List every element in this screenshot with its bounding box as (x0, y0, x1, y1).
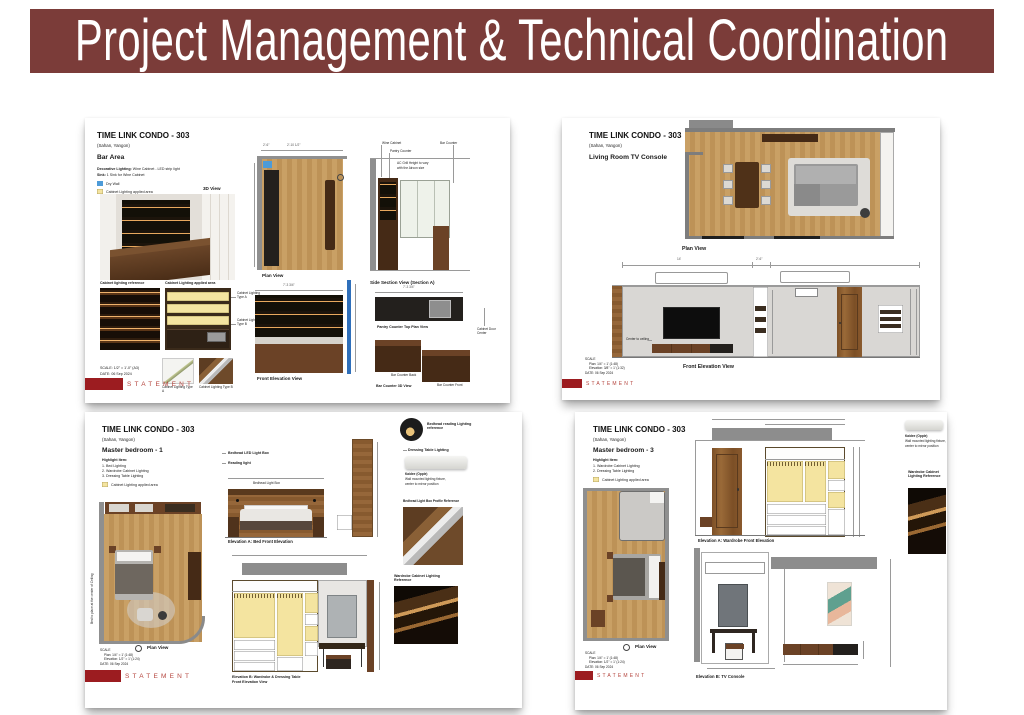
plan-wall-left (685, 154, 689, 238)
console-dim-line (863, 641, 864, 659)
center-ceiling-note: Center to ceiling (626, 338, 649, 342)
view-3d-label: 3D View (203, 186, 221, 191)
sheet-location: (Sahan, Yangon) (97, 143, 130, 148)
banner: Project Management & Technical Coordinat… (30, 9, 994, 73)
legend-cabinet-swatch (593, 477, 599, 482)
sofa-chaise (794, 184, 820, 206)
room-name: Bar Area (97, 154, 124, 162)
counter-leg (323, 649, 324, 667)
bar-counter-front-label: Bar Counter Front (437, 384, 463, 388)
plan-view-label: Plan View (635, 644, 656, 649)
highlight-item-1: 1. Wardrobe Cabinet Lighting (593, 464, 640, 468)
legend-cabinet-label: Cabinet Lighting applied area (602, 478, 649, 482)
hanger-ticks (805, 462, 826, 466)
elev-dim-26: 2'-6" (756, 258, 762, 262)
wardrobe-top-shelf-line (232, 591, 318, 592)
center-ceiling-leader (648, 340, 652, 341)
elevation-a-label: Elevation A: Bed Front Elevation (228, 540, 293, 545)
highlight-item-2: 2. Dressing Table Lighting (593, 469, 634, 473)
bar-counter-back-label: Bar Counter Back (391, 374, 416, 378)
bed-elevation (228, 489, 324, 537)
callout-leader-3 (453, 145, 454, 183)
highlight-title: Highlight Item: (102, 458, 127, 462)
eleva-dim-line-2 (765, 424, 845, 425)
bed-dim-line (228, 478, 324, 479)
door-knob (737, 488, 739, 491)
wardrobe-side-panel (352, 439, 373, 537)
room-name: Master bedroom - 1 (102, 447, 163, 455)
sheet-title: TIME LINK CONDO - 303 (102, 425, 194, 434)
led-fixture-image (905, 420, 943, 430)
plan-bathroom-pod (619, 491, 665, 541)
plan-dim-a: 2'-6" (263, 144, 269, 148)
elev-ceiling-cove (655, 272, 728, 284)
eleva-dim-line-v1 (853, 447, 854, 537)
pantry-counter-callout: Pantry Counter (390, 150, 411, 154)
shelf-stripe (880, 310, 901, 314)
elev-dim-line-v (377, 442, 378, 537)
bedside-table (228, 517, 239, 537)
dim-tick (770, 262, 771, 268)
sofa-cushions (796, 166, 856, 184)
callout-leader (222, 463, 226, 464)
elev-wood-pilaster (612, 286, 622, 357)
door-knob (839, 322, 841, 324)
sheet-location: (Sahan, Yangon) (102, 437, 135, 442)
dressing-mirror (327, 595, 357, 638)
led-fixture-image (405, 456, 467, 469)
elevb-tv (718, 584, 748, 627)
eleva-pelmet (712, 428, 832, 440)
hanger-ticks (234, 594, 275, 598)
plan-balcony-strip (880, 132, 894, 238)
wardrobe-hanging-left (767, 461, 803, 502)
callout-leader (403, 450, 407, 451)
plan-bed (613, 554, 661, 600)
reading-light-fixture (236, 499, 239, 502)
cabinet-lighting-reference-photo (100, 288, 160, 350)
plan-fixture (109, 504, 129, 512)
eleva-ceiling-line (695, 440, 865, 441)
art-dim-line-h (783, 664, 858, 665)
wine-cabinet-callout: Wine Cabinet (382, 142, 401, 146)
highlight-item-1: 1. Bed Lighting (102, 464, 126, 468)
plan-fixture-dark (165, 504, 195, 512)
front-elev-dim-line (255, 290, 343, 291)
plan-window (774, 236, 820, 239)
eleva-wall-box (700, 517, 712, 527)
elev-floor-line (612, 357, 920, 358)
sheet-location: (Sahan, Yangon) (589, 143, 622, 148)
console-leg (752, 633, 755, 653)
ac-grill-note-2: with the Aircon size (397, 167, 424, 171)
wardrobe-drawer (767, 515, 826, 525)
sheet-master-bedroom-1: TIME LINK CONDO - 303 (Sahan, Yangon) Ma… (85, 412, 522, 708)
elevb-side-panel (367, 580, 374, 672)
pantry-dim-line (375, 292, 463, 293)
plan-side-table (158, 611, 167, 620)
elevb-pelmet (242, 563, 347, 575)
legend-drywall-label: Dry Wall (106, 182, 119, 186)
statement-logo-mark (85, 378, 123, 390)
elevation-b-label-1: Elevation B: Wardrobe & Dressing Table (232, 675, 301, 679)
date-note: DATE: 06 Sep 2024 (100, 663, 128, 667)
callout-leader-2 (389, 153, 390, 179)
bar-counter-front-face (422, 356, 470, 382)
wardrobe-drawer (234, 651, 275, 661)
shelf-stripe (880, 324, 901, 328)
note-lighting: Decorative Lighting: Wine Cabinet - LED … (97, 167, 180, 171)
plan-dim-line (261, 150, 343, 151)
plan-dining-table (735, 162, 759, 208)
highlight-item-2: 2. Wardrobe Cabinet Lighting (102, 469, 149, 473)
plan-dim-b: 2'-10 1/2" (287, 144, 300, 148)
elev-tv-console (652, 344, 733, 353)
plan-wall-bottom (583, 638, 669, 641)
page-title: Project Management & Technical Coordinat… (75, 9, 949, 73)
reading-light-fixture (313, 499, 316, 502)
stool-top (326, 655, 351, 659)
plan-bench (591, 610, 605, 627)
wardrobe-lighting-photo (394, 586, 458, 644)
type-b-leader (231, 324, 236, 325)
wardrobe-hanging-mid (805, 461, 826, 502)
section-bar-counter (433, 226, 449, 270)
wardrobe-drawer (767, 526, 826, 535)
sheet-title: TIME LINK CONDO - 303 (593, 425, 685, 434)
pantry-dim: 7'-3 3/4" (403, 286, 415, 290)
stool-top (726, 644, 744, 649)
sheet-location: (Sahan, Yangon) (593, 437, 626, 442)
statement-logo-mark (85, 670, 121, 682)
bed-blanket (115, 564, 153, 594)
elev-shelf-column (753, 287, 768, 357)
eleva-floor-line (695, 535, 865, 536)
north-compass-icon (623, 644, 630, 651)
wardrobe-shelf (305, 614, 318, 625)
wardrobe-hanging-mid (277, 593, 303, 656)
eleva-wall-left (695, 440, 696, 535)
bed-throw (240, 521, 312, 530)
console-dark-segment (710, 344, 733, 353)
eleva-door (712, 448, 742, 535)
sheet-living-room: TIME LINK CONDO - 303 (Sahan, Yangon) Li… (562, 118, 940, 400)
light-box-profile-photo (403, 507, 463, 565)
section-ceiling-line (370, 158, 470, 159)
section-cut-marker (347, 280, 351, 374)
shelf-stripe (755, 306, 766, 311)
elev-dim-line-right (910, 289, 911, 355)
bar-counter-3d-label: Bar Counter 3D View (376, 384, 411, 388)
bar-3d-render (100, 194, 235, 280)
elevation-a-label: Elevation A: Wardrobe Front Elevation (698, 539, 774, 544)
statement-logo-text: STATEMENT (125, 673, 192, 680)
wardrobe-shelf (828, 509, 845, 535)
elevation-b-label-2: Front Elevation View (232, 680, 267, 684)
plan-view-label: Plan View (147, 645, 168, 650)
bed-pillows (117, 552, 151, 561)
highlight-title: Highlight Item: (593, 458, 618, 462)
plan-coffee-table (860, 208, 870, 218)
elev-tv (663, 307, 720, 339)
elev-ac-grill (795, 288, 818, 297)
counter-leg (361, 649, 362, 667)
plan-armchair (137, 608, 153, 621)
front-elevation-label: Front Elevation View (257, 376, 302, 381)
cabinet-applied-image (165, 288, 231, 350)
profile-ref-label: Bedhead Light Box Profile Reference (403, 500, 459, 504)
wardrobe-lighting-photo (908, 488, 946, 554)
elevb-dim-line (232, 555, 367, 556)
front-elevation-label: Front Elevation View (683, 364, 734, 370)
shelf-stripe (755, 328, 766, 333)
wardrobe-shelf-lit (305, 593, 318, 613)
bed-position-note: Bed to place at the center of Ceiling (91, 566, 95, 624)
section-marker-icon (337, 174, 344, 181)
plan-display-panel (325, 180, 335, 250)
art-wall-pelmet (771, 557, 877, 569)
elev-dim-line (622, 265, 920, 266)
door-panel (716, 454, 738, 528)
dim-tick (622, 262, 623, 268)
wardrobe-drawer (277, 657, 303, 671)
wardrobe-drawer (767, 504, 826, 514)
lit-shelf (167, 304, 229, 313)
wardrobe-ref-label: Wardrobe Cabinet Lighting Reference (908, 470, 946, 478)
note-sink: Sink: 1 Sink for Wine Cabinet (97, 173, 145, 177)
plan-wardrobe-band (105, 502, 201, 514)
wardrobe-drawer (234, 640, 275, 650)
type-a-leader (231, 297, 236, 298)
plan-wall-right (665, 488, 669, 641)
dressing-counter (319, 643, 365, 649)
sheet-title: TIME LINK CONDO - 303 (97, 131, 189, 140)
elevb-dim-line-v (379, 582, 380, 670)
console-dark-segment (833, 644, 858, 655)
wardrobe-hanging-left (234, 593, 275, 638)
bar-counter-callout: Bar Counter (440, 142, 457, 146)
lit-shelf (167, 292, 229, 301)
reading-ref-label: Bedhead reading Lighting reference (427, 422, 483, 430)
section-floor-line (370, 270, 470, 271)
dim-tick (919, 262, 920, 268)
lighting-type-b-sample (199, 358, 233, 384)
callout-leader-1 (381, 145, 382, 177)
cabinet-ref-label: Cabinet lighting reference (100, 281, 144, 285)
eleva-dim-line-v2 (859, 447, 860, 537)
wardrobe-shelf-lit (305, 626, 318, 641)
elev-ceiling-cove (780, 271, 850, 283)
hanger-ticks (277, 594, 303, 598)
lit-shelf (167, 316, 229, 325)
plan-dim-line-left (254, 163, 255, 267)
dressing-light-label: Dressing Table Lighting (408, 448, 449, 452)
plan-sofa (794, 164, 858, 206)
north-compass-icon (135, 645, 142, 652)
elev-bottle-shelves (255, 295, 343, 337)
plan-chair (723, 196, 733, 205)
hanger-ticks (767, 462, 803, 466)
plan-chair (761, 164, 771, 173)
ac-grill (207, 332, 226, 342)
highlight-item-3: 3. Dressing Table Lighting (102, 474, 143, 478)
fixture-note-2: center to mirror position (405, 483, 438, 487)
console-leg (712, 633, 715, 653)
door-center-callout: Cabinet Door Center (477, 328, 505, 336)
date-note: DATE: 06 Sep 2024 (100, 372, 132, 376)
floating-console (783, 644, 858, 655)
legend-drywall-swatch (97, 181, 103, 186)
console-top (710, 629, 757, 633)
pantry-top-label: Pantry Counter Top Plan View (377, 325, 428, 329)
bar-front-elevation (255, 295, 343, 373)
eleva-dim-line-1 (712, 419, 845, 420)
pantry-counter-top-plan (375, 297, 463, 321)
elevb-stool (725, 643, 743, 660)
wardrobe-drawer (234, 662, 275, 671)
sheet-master-bedroom-3: TIME LINK CONDO - 303 (Sahan, Yangon) Ma… (575, 412, 947, 710)
bedhead-box-callout: Bedhead Light Box (253, 482, 280, 486)
elevb-dim-line-h (707, 668, 775, 669)
elev-dim-line-v (772, 290, 773, 354)
statement-logo-text: STATEMENT (127, 381, 194, 388)
art-dim-line-v (890, 559, 891, 667)
plan-chair (723, 180, 733, 189)
bedside-table (313, 517, 324, 537)
front-elev-dim-line-v (355, 284, 356, 372)
plan-adjacent-wall (689, 120, 733, 128)
statement-logo-text: STATEMENT (586, 381, 635, 387)
cabinet-applied-label: Cabinet Lighting applied area (165, 281, 215, 285)
bed-blanket (613, 558, 645, 596)
plan-wine-cabinet (264, 170, 279, 266)
pod-notch (650, 492, 664, 503)
elev-dim-line-right-2 (916, 289, 917, 355)
plan-fixture (135, 504, 153, 512)
fixture-note-2: center to mirror position (905, 445, 938, 449)
scale-note: SCALE: 1/2" = 1'-0" (A3) (100, 366, 139, 370)
shelf-stripe (755, 317, 766, 322)
sheet-title: TIME LINK CONDO - 303 (589, 131, 681, 140)
type-b-sample-label: Cabinet Lighting Type B (199, 386, 233, 390)
room-name: Master bedroom - 3 (593, 447, 654, 455)
callout-leader (222, 453, 226, 454)
plan-chair (761, 180, 771, 189)
room-name: Living Room TV Console (589, 154, 667, 162)
statement-logo-text: STATEMENT (597, 673, 646, 679)
pantry-sink (429, 300, 451, 318)
legend-cabinet-label: Cabinet Lighting applied area (111, 483, 158, 487)
plan-sideboard (762, 134, 818, 142)
dressing-stool (326, 655, 351, 669)
elev-door (837, 287, 862, 357)
plan-chair (723, 164, 733, 173)
plan-wall-bottom (104, 641, 180, 644)
section-wine-shelves (380, 182, 396, 220)
artwork (827, 582, 852, 626)
date-note: DATE: 06 Sep 2024 (585, 372, 613, 376)
plan-bedside (154, 546, 161, 553)
elevation-b-label: Elevation B: TV Console (696, 675, 744, 680)
elev-marble-band (255, 337, 343, 344)
spotlight-icon (397, 415, 425, 443)
plan-bed (115, 550, 153, 600)
plan-view-label: Plan View (262, 273, 283, 278)
elev-counter-base (255, 344, 343, 373)
legend-cabinet-swatch (102, 482, 108, 487)
wardrobe-shelf (828, 480, 845, 491)
plan-window (702, 236, 744, 239)
plan-tv-strip (659, 562, 665, 600)
elevb-wall-strip (694, 548, 700, 662)
date-note: DATE: 06 Sep 2024 (585, 666, 613, 670)
dim-tick (752, 262, 753, 268)
wardrobe-shelf-lit (828, 461, 845, 479)
plan-chair (761, 196, 771, 205)
wardrobe-ref-label: Wardrobe Cabinet Lighting Reference (394, 574, 446, 582)
elevb-ceiling-cove (705, 562, 765, 574)
bed-floor-line (225, 537, 327, 538)
door-panel (841, 294, 858, 350)
bedhead-led-callout: Bedhead LED Light Box (228, 451, 269, 455)
wardrobe-shelf-lit (828, 492, 845, 508)
shelf-stripe (880, 317, 901, 321)
bar-counter-back-front (375, 346, 421, 372)
section-wall (370, 158, 376, 270)
elev-dim-14: 14' (677, 258, 681, 262)
wardrobe-shelf (305, 642, 318, 656)
wardrobe-top-shelf-line (765, 459, 845, 460)
door-center-leader (484, 308, 485, 326)
reading-light-callout: Reading light (228, 461, 251, 465)
front-elev-dim: 7'-3 3/4" (283, 284, 295, 288)
plan-view-label: Plan View (682, 246, 706, 252)
bedhead-light-box (228, 489, 324, 495)
plan-tv-unit (188, 552, 201, 600)
plan-drywall-marker (263, 161, 272, 168)
statement-logo-mark (575, 671, 593, 680)
statement-logo-mark (562, 379, 582, 388)
wall-niche (337, 515, 352, 530)
sheet-bar-area: TIME LINK CONDO - 303 (Sahan, Yangon) Ba… (85, 118, 510, 403)
